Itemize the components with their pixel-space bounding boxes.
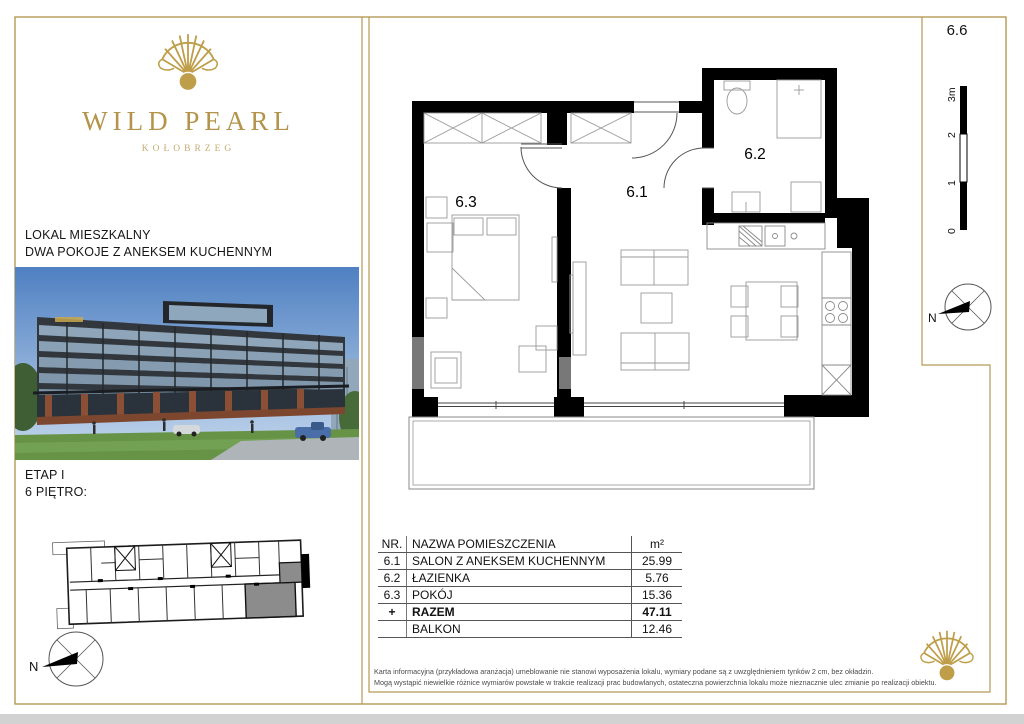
table-row: 6.1 SALON Z ANEKSEM KUCHENNYM 25.99 — [378, 553, 682, 570]
table-row: BALKON 12.46 — [378, 621, 682, 638]
disclaimer-line-2: Mogą wystąpić niewielkie różnice wymiaró… — [374, 678, 937, 687]
wall-window-segments — [412, 337, 571, 389]
disclaimer-line-1: Karta informacyjna (przykładowa aranżacj… — [374, 667, 873, 676]
room-label-living: 6.1 — [626, 184, 648, 201]
scale-label-2: 2 — [946, 132, 958, 138]
highlighted-unit — [245, 582, 296, 618]
compass-n-label: N — [928, 311, 937, 325]
floor-plan: 6.3 6.1 6.2 — [394, 55, 874, 505]
header-nr: NR. — [378, 536, 407, 553]
unit-number: 6.6 — [922, 22, 992, 39]
room-label-bath: 6.2 — [744, 146, 766, 163]
balcony — [409, 417, 814, 489]
kitchen-units — [707, 223, 851, 395]
table-row: 6.2 ŁAZIENKA 5.76 — [378, 570, 682, 587]
compass-needle-icon — [938, 301, 970, 314]
table-row: 6.3 POKÓJ 15.36 — [378, 587, 682, 604]
listing-category: LOKAL MIESZKALNY — [25, 227, 272, 244]
scale-bar: 0 1 2 3m — [938, 76, 984, 242]
table-total-row: + RAZEM 47.11 — [378, 604, 682, 621]
compass-needle-icon — [42, 652, 78, 667]
room-label-bedroom: 6.3 — [455, 194, 477, 211]
brand-city: KOŁOBRZEG — [15, 144, 362, 154]
walls — [412, 68, 869, 417]
building-photo — [15, 267, 359, 460]
page-bottom-band — [0, 714, 1024, 724]
compass-top-right: N — [926, 278, 1010, 344]
compass-n-label: N — [29, 659, 38, 674]
footer-shell-icon — [916, 627, 978, 684]
compass-bottom-left: N — [26, 626, 118, 706]
listing-layout: DWA POKOJE Z ANEKSEM KUCHENNYM — [25, 244, 272, 261]
bathroom-fixtures — [724, 80, 821, 212]
living-room-furniture — [570, 250, 798, 370]
scale-label-1: 1 — [946, 180, 958, 186]
area-table: NR. NAZWA POMIESZCZENIA m² 6.1 SALON Z A… — [378, 536, 682, 638]
scale-label-0: 0 — [946, 228, 958, 234]
bedroom-furniture — [424, 113, 631, 388]
brand-name: WILD PEARL — [15, 106, 362, 137]
header-area: m² — [632, 536, 683, 553]
scale-label-3m: 3m — [946, 87, 958, 102]
brand-shell-logo-icon — [153, 30, 223, 94]
info-card-page: { "brand": { "name": "WILD PEARL", "city… — [0, 0, 1024, 724]
listing-type: LOKAL MIESZKALNY DWA POKOJE Z ANEKSEM KU… — [25, 227, 272, 261]
stage-label: ETAP I — [25, 467, 87, 484]
table-header-row: NR. NAZWA POMIESZCZENIA m² — [378, 536, 682, 553]
key-plan — [40, 528, 340, 640]
floor-label: 6 PIĘTRO: — [25, 484, 87, 501]
stage-block: ETAP I 6 PIĘTRO: — [25, 467, 87, 501]
windows — [438, 401, 784, 409]
header-name: NAZWA POMIESZCZENIA — [407, 536, 632, 553]
